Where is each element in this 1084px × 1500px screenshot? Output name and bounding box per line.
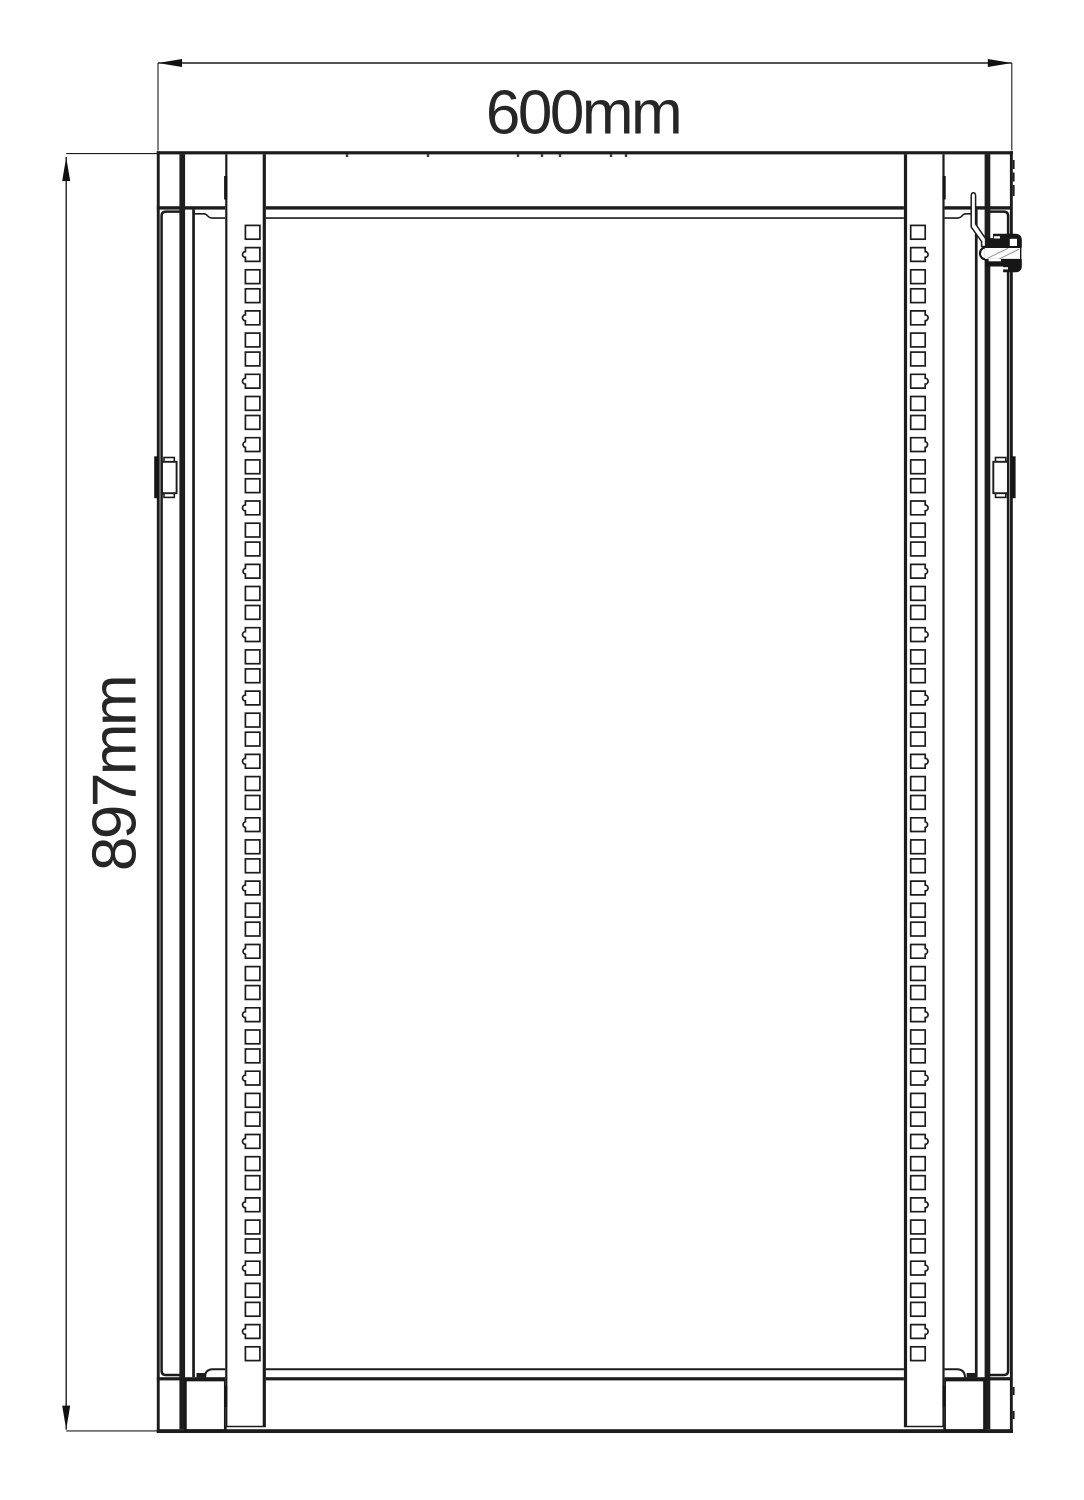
svg-text:600mm: 600mm <box>486 79 680 148</box>
svg-text:897mm: 897mm <box>81 677 150 871</box>
